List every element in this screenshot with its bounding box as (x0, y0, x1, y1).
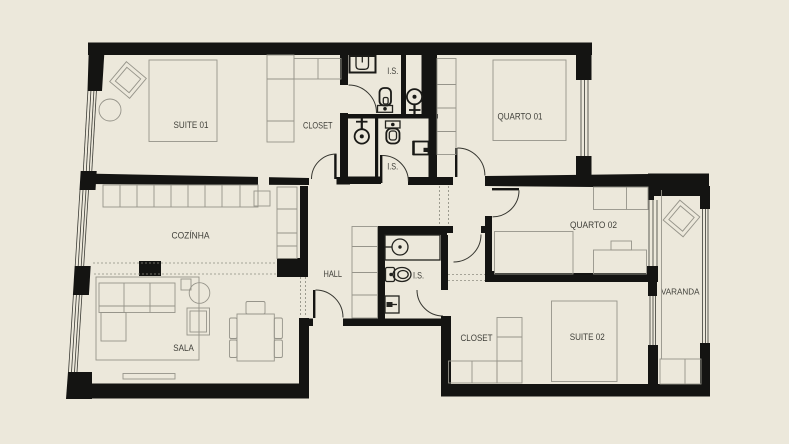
svg-text:SALA: SALA (173, 343, 194, 354)
svg-text:QUARTO 02: QUARTO 02 (570, 220, 617, 231)
svg-text:VARANDA: VARANDA (661, 287, 700, 297)
svg-text:CLOSET: CLOSET (303, 120, 333, 131)
svg-text:QUARTO 01: QUARTO 01 (498, 112, 543, 123)
svg-text:I.S.: I.S. (387, 162, 398, 173)
svg-text:COZÍNHA: COZÍNHA (172, 231, 211, 242)
svg-text:SUITE 01: SUITE 01 (174, 120, 209, 131)
svg-text:SUITE 02: SUITE 02 (570, 332, 605, 343)
svg-text:CLOSET: CLOSET (461, 333, 493, 344)
svg-text:I.S.: I.S. (387, 66, 398, 77)
svg-text:I.S.: I.S. (413, 271, 424, 282)
svg-text:HALL: HALL (324, 269, 343, 280)
